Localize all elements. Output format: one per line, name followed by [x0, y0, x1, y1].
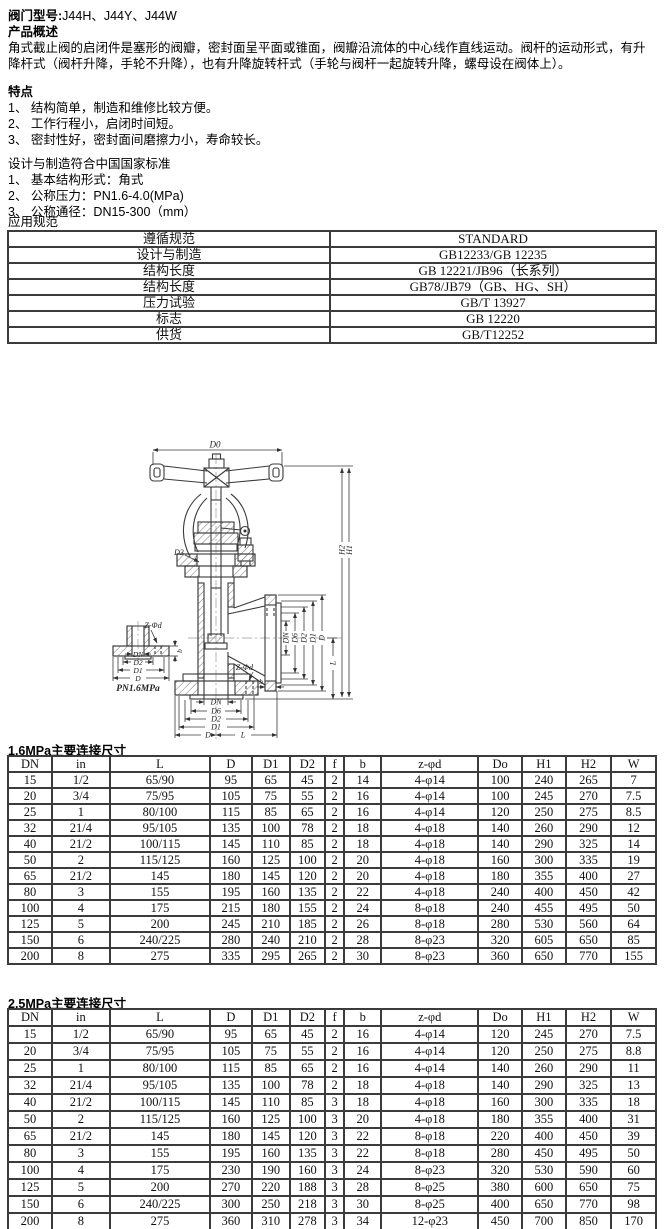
table-cell: 28	[344, 932, 381, 948]
table-cell: 20	[344, 1111, 381, 1128]
table-cell: GB78/JB79（GB、HG、SH）	[330, 279, 656, 295]
table-cell: 1/2	[52, 1026, 110, 1043]
table-row: 结构长度GB78/JB79（GB、HG、SH）	[8, 279, 656, 295]
table-cell: 4-φ14	[381, 804, 478, 820]
pressure-note: PN1.6MPa	[116, 684, 160, 694]
table-cell: 245	[522, 788, 566, 804]
table-cell: 遵循规范	[8, 231, 330, 247]
table-cell: 4	[52, 900, 110, 916]
table-cell: 45	[290, 772, 325, 788]
table-cell: 98	[611, 1196, 656, 1213]
table-cell: 2	[325, 1026, 344, 1043]
table-cell: 结构长度	[8, 263, 330, 279]
table-cell: 295	[252, 948, 290, 964]
table-cell: 2	[325, 1060, 344, 1077]
table-cell: 65	[8, 868, 52, 884]
table-cell: 120	[290, 1128, 325, 1145]
table-cell: 75/95	[110, 788, 210, 804]
table-cell: 270	[566, 1026, 611, 1043]
table-cell: 95	[210, 772, 251, 788]
table-cell: 85	[290, 836, 325, 852]
table-cell: 85	[252, 1060, 290, 1077]
table-cell: 20	[344, 868, 381, 884]
table-cell: 240	[478, 884, 521, 900]
table-cell: 450	[566, 1128, 611, 1145]
table-cell: 495	[566, 1145, 611, 1162]
table-cell: 145	[110, 1128, 210, 1145]
model-label: 阀门型号:	[8, 9, 62, 23]
table-row: 25180/10011585652164-φ1414026029011	[8, 1060, 656, 1077]
dim-label: D	[318, 635, 327, 642]
design-item: 1、 基本结构形式：角式	[8, 172, 196, 188]
table-cell: 45	[290, 1026, 325, 1043]
dim-label: DN	[282, 632, 291, 645]
table-cell: 240	[522, 772, 566, 788]
table-cell: 3	[325, 1145, 344, 1162]
table-cell: 105	[210, 788, 251, 804]
table-cell: 18	[344, 836, 381, 852]
table-cell: 40	[8, 1094, 52, 1111]
table-cell: 3	[52, 1145, 110, 1162]
table-cell: GB 12221/JB96（长系列）	[330, 263, 656, 279]
feature-item: 2、 工作行程小，启闭时间短。	[8, 116, 268, 132]
table-cell: 80/100	[110, 1060, 210, 1077]
table-cell: 180	[478, 1111, 521, 1128]
table-cell: 600	[522, 1179, 566, 1196]
table-row: 12552002702201883288-φ2538060065075	[8, 1179, 656, 1196]
table-cell: 95/105	[110, 820, 210, 836]
table-cell: 85	[252, 804, 290, 820]
table-cell: 280	[478, 1145, 521, 1162]
table-cell: 300	[522, 852, 566, 868]
product-overview-text: 角式截止阀的启闭件是塞形的阀瓣，密封面呈平面或锥面，阀瓣沿流体的中心线作直线运动…	[8, 40, 657, 72]
table-cell: 8-φ25	[381, 1196, 478, 1213]
table-cell: 215	[210, 900, 251, 916]
table-cell: 100	[252, 1077, 290, 1094]
table-cell: STANDARD	[330, 231, 656, 247]
table-row: 25180/10011585652164-φ141202502758.5	[8, 804, 656, 820]
table-cell: 20	[8, 788, 52, 804]
table-cell: 270	[566, 788, 611, 804]
design-standards-section: 设计与制造符合中国国家标准 1、 基本结构形式：角式 2、 公称压力：PN1.6…	[8, 156, 196, 220]
table-cell: 145	[252, 868, 290, 884]
table-cell: 2	[325, 948, 344, 964]
table-cell: 700	[522, 1213, 566, 1229]
column-header: H1	[522, 1009, 566, 1026]
table-cell: 21/2	[52, 1128, 110, 1145]
table-cell: 300	[522, 1094, 566, 1111]
table-cell: 85	[290, 1094, 325, 1111]
table-cell: 290	[522, 1077, 566, 1094]
table-cell: 4-φ18	[381, 1077, 478, 1094]
table-cell: 230	[210, 1162, 251, 1179]
table-cell: 16	[344, 788, 381, 804]
features-section: 特点 1、 结构简单，制造和维修比较方便。 2、 工作行程小，启闭时间短。 3、…	[8, 84, 268, 148]
table-cell: 175	[110, 1162, 210, 1179]
table-cell: 125	[252, 852, 290, 868]
table-cell: 22	[344, 1145, 381, 1162]
table-cell: 21/2	[52, 836, 110, 852]
table-cell: 275	[566, 804, 611, 820]
table-cell: 135	[210, 820, 251, 836]
table-cell: 160	[252, 884, 290, 900]
table-cell: 8	[52, 1213, 110, 1229]
dim-label: D1	[309, 633, 318, 644]
table-cell: 85	[611, 932, 656, 948]
features-heading: 特点	[8, 84, 268, 100]
table-cell: 335	[566, 852, 611, 868]
table-cell: 2	[52, 852, 110, 868]
table-cell: 160	[210, 1111, 251, 1128]
dim-label: DN	[209, 698, 222, 707]
column-header: H2	[566, 756, 611, 772]
feature-item: 1、 结构简单，制造和维修比较方便。	[8, 100, 268, 116]
table-cell: 8-φ18	[381, 900, 478, 916]
table-cell: 50	[8, 852, 52, 868]
table-cell: 320	[478, 1162, 521, 1179]
table-cell: 2	[325, 852, 344, 868]
table-cell: 55	[290, 1043, 325, 1060]
table-cell: 3	[52, 884, 110, 900]
table-cell: 450	[566, 884, 611, 900]
table-cell: 140	[478, 820, 521, 836]
application-spec-heading: 应用规范	[8, 214, 58, 230]
model-value: J44H、J44Y、J44W	[62, 9, 177, 23]
dim-label: L	[240, 731, 246, 740]
table-cell: 80	[8, 884, 52, 900]
table-cell: 115/125	[110, 852, 210, 868]
table-row: 3221/495/105135100782184-φ1814026029012	[8, 820, 656, 836]
table-cell: 200	[8, 948, 52, 964]
table-row: 502115/1251601251002204-φ1816030033519	[8, 852, 656, 868]
dim-label: Z-Φd	[236, 663, 254, 672]
table-cell: 125	[252, 1111, 290, 1128]
table-cell: 30	[344, 948, 381, 964]
table-cell: GB/T12252	[330, 327, 656, 343]
table-cell: 2	[325, 932, 344, 948]
table-cell: 压力试验	[8, 295, 330, 311]
table-cell: 2	[325, 1043, 344, 1060]
table-cell: 200	[110, 916, 210, 932]
table-cell: 50	[611, 1145, 656, 1162]
table-cell: 25	[8, 1060, 52, 1077]
table-cell: 8-φ18	[381, 916, 478, 932]
table-cell: 27	[611, 868, 656, 884]
table-cell: 400	[566, 868, 611, 884]
table-cell: 1/2	[52, 772, 110, 788]
table-cell: 2	[325, 836, 344, 852]
table-cell: 50	[611, 900, 656, 916]
table-row: 设计与制造GB12233/GB 12235	[8, 247, 656, 263]
table-cell: 75/95	[110, 1043, 210, 1060]
table-cell: 65	[252, 772, 290, 788]
table-cell: 355	[522, 868, 566, 884]
table-cell: 200	[8, 1213, 52, 1229]
table-cell: 100	[290, 852, 325, 868]
header-row: DNinLDD1D2fbz-φdDoH1H2W	[8, 1009, 656, 1026]
table-cell: 530	[522, 1162, 566, 1179]
table-cell: 110	[252, 836, 290, 852]
table-cell: 42	[611, 884, 656, 900]
table-cell: 31	[611, 1111, 656, 1128]
table-cell: 650	[566, 932, 611, 948]
table-cell: 60	[611, 1162, 656, 1179]
column-header: z-φd	[381, 756, 478, 772]
table-cell: GB/T 13927	[330, 295, 656, 311]
table-cell: 260	[522, 820, 566, 836]
table-cell: 80/100	[110, 804, 210, 820]
table-cell: 24	[344, 900, 381, 916]
table-cell: 7.5	[611, 788, 656, 804]
table-cell: 3	[325, 1213, 344, 1229]
table-cell: 7	[611, 772, 656, 788]
table-cell: 65	[8, 1128, 52, 1145]
table-cell: 32	[8, 820, 52, 836]
table-cell: 2	[325, 772, 344, 788]
table-cell: 55	[290, 788, 325, 804]
table-cell: 155	[110, 884, 210, 900]
table-cell: 105	[210, 1043, 251, 1060]
table-cell: 160	[478, 852, 521, 868]
table-cell: 5	[52, 916, 110, 932]
table-cell: 135	[290, 1145, 325, 1162]
table-cell: 5	[52, 1179, 110, 1196]
table-cell: 210	[290, 932, 325, 948]
table-cell: 2	[325, 804, 344, 820]
table-cell: 16	[344, 1043, 381, 1060]
table-cell: 6	[52, 1196, 110, 1213]
table-row: 4021/2100/115145110852184-φ1814029032514	[8, 836, 656, 852]
table-cell: 78	[290, 1077, 325, 1094]
column-header: DN	[8, 756, 52, 772]
table-cell: 145	[210, 836, 251, 852]
table-cell: 218	[290, 1196, 325, 1213]
table-cell: 12-φ23	[381, 1213, 478, 1229]
table-cell: 150	[8, 932, 52, 948]
dim-label: D6	[291, 633, 300, 644]
table-row: 6521/21451801451203228-φ1822040045039	[8, 1128, 656, 1145]
table-cell: 250	[522, 1043, 566, 1060]
table-cell: 21/2	[52, 868, 110, 884]
table-cell: 180	[478, 868, 521, 884]
table-cell: 115	[210, 1060, 251, 1077]
table-cell: 4-φ14	[381, 1060, 478, 1077]
table-cell: 4-φ18	[381, 1111, 478, 1128]
column-header: D	[210, 756, 251, 772]
table-cell: 4-φ18	[381, 820, 478, 836]
table-cell: 850	[566, 1213, 611, 1229]
column-header: H1	[522, 756, 566, 772]
table-cell: 270	[210, 1179, 251, 1196]
table-cell: 400	[522, 884, 566, 900]
dim-label: D2	[300, 633, 309, 644]
table-cell: 100	[290, 1111, 325, 1128]
table-cell: 3	[325, 1111, 344, 1128]
table-cell: 4-φ14	[381, 772, 478, 788]
table-cell: 280	[210, 932, 251, 948]
table-cell: 150	[8, 1196, 52, 1213]
column-header: Do	[478, 756, 521, 772]
table-cell: 95/105	[110, 1077, 210, 1094]
table-cell: 188	[290, 1179, 325, 1196]
dimension-table-25mpa: DNinLDD1D2fbz-φdDoH1H2W 151/265/90956545…	[7, 1008, 657, 1229]
table-cell: 115	[210, 804, 251, 820]
table-cell: 120	[478, 1043, 521, 1060]
column-header: b	[344, 1009, 381, 1026]
table-cell: 325	[566, 1077, 611, 1094]
table-cell: 100	[252, 820, 290, 836]
table-cell: 65	[290, 804, 325, 820]
table-cell: 175	[110, 900, 210, 916]
table-cell: 245	[522, 1026, 566, 1043]
table-row: 10041752151801552248-φ1824045549550	[8, 900, 656, 916]
column-header: W	[611, 1009, 656, 1026]
table-cell: 4-φ14	[381, 1043, 478, 1060]
table-cell: 4-φ14	[381, 1026, 478, 1043]
table-row: 151/265/909565452144-φ141002402657	[8, 772, 656, 788]
column-header: D2	[290, 756, 325, 772]
table-cell: 3	[325, 1094, 344, 1111]
table-cell: 155	[110, 1145, 210, 1162]
column-header: in	[52, 1009, 110, 1026]
table-cell: 115/125	[110, 1111, 210, 1128]
table-row: 10041752301901603248-φ2332053059060	[8, 1162, 656, 1179]
dim-label: D	[134, 674, 141, 683]
table-cell: 278	[290, 1213, 325, 1229]
table-cell: 16	[344, 1060, 381, 1077]
table-cell: 250	[522, 804, 566, 820]
table-cell: 200	[110, 1179, 210, 1196]
table-row: 8031551951601353228-φ1828045049550	[8, 1145, 656, 1162]
table-cell: 18	[344, 1077, 381, 1094]
table-cell: 160	[478, 1094, 521, 1111]
dim-label: D1	[210, 723, 221, 732]
column-header: f	[325, 1009, 344, 1026]
table-row: 200827536031027833412-φ23450700850170	[8, 1213, 656, 1229]
table-row: 8031551951601352224-φ1824040045042	[8, 884, 656, 900]
table-cell: 195	[210, 1145, 251, 1162]
header-row: DNinLDD1D2fbz-φdDoH1H2W	[8, 756, 656, 772]
table-row: 压力试验GB/T 13927	[8, 295, 656, 311]
valve-technical-drawing: D0 D3 DN D6 D2 D1 D L H2 H1 Z-Φd b DN D6…	[95, 438, 365, 745]
table-cell: 310	[252, 1213, 290, 1229]
table-cell: 145	[110, 868, 210, 884]
table-cell: 100	[478, 788, 521, 804]
table-cell: 18	[611, 1094, 656, 1111]
column-header: W	[611, 756, 656, 772]
table-cell: 21/4	[52, 1077, 110, 1094]
table-cell: 6	[52, 932, 110, 948]
table-cell: 530	[522, 916, 566, 932]
product-overview-heading: 产品概述	[8, 24, 58, 40]
table-cell: 240	[478, 900, 521, 916]
table-cell: 3	[325, 1196, 344, 1213]
table-cell: 240/225	[110, 932, 210, 948]
table-cell: 220	[252, 1179, 290, 1196]
table-cell: 260	[522, 1060, 566, 1077]
table-row: 标志GB 12220	[8, 311, 656, 327]
table-cell: 245	[210, 916, 251, 932]
table-row: 6521/21451801451202204-φ1818035540027	[8, 868, 656, 884]
table-cell: 3	[325, 1128, 344, 1145]
table-cell: 2	[325, 916, 344, 932]
column-header: D1	[252, 1009, 290, 1026]
table-cell: 320	[478, 932, 521, 948]
table-cell: 180	[252, 900, 290, 916]
table-cell: 2	[52, 1111, 110, 1128]
table-cell: 25	[8, 804, 52, 820]
design-item: 2、 公称压力：PN1.6-4.0(MPa)	[8, 188, 196, 204]
table-row: 203/475/9510575552164-φ141202502758.8	[8, 1043, 656, 1060]
table-cell: 22	[344, 1128, 381, 1145]
table-cell: 75	[611, 1179, 656, 1196]
table-cell: 75	[252, 788, 290, 804]
column-header: z-φd	[381, 1009, 478, 1026]
table-cell: 495	[566, 900, 611, 916]
table-cell: 135	[210, 1077, 251, 1094]
table-cell: 80	[8, 1145, 52, 1162]
table-cell: 190	[252, 1162, 290, 1179]
table-cell: 65/90	[110, 772, 210, 788]
table-cell: 140	[478, 1077, 521, 1094]
table-cell: 240/225	[110, 1196, 210, 1213]
table-row: 151/265/909565452164-φ141202452707.5	[8, 1026, 656, 1043]
table-cell: 15	[8, 772, 52, 788]
table-cell: 8	[52, 948, 110, 964]
table-cell: 64	[611, 916, 656, 932]
table-row: 遵循规范STANDARD	[8, 231, 656, 247]
table-cell: 65	[252, 1026, 290, 1043]
table-cell: 4-φ18	[381, 868, 478, 884]
table-cell: 39	[611, 1128, 656, 1145]
table-row: 203/475/9510575552164-φ141002452707.5	[8, 788, 656, 804]
column-header: in	[52, 756, 110, 772]
table-cell: 95	[210, 1026, 251, 1043]
table-cell: 8-φ18	[381, 1145, 478, 1162]
table-cell: 275	[110, 948, 210, 964]
table-cell: 14	[611, 836, 656, 852]
table-row: 20082753352952652308-φ23360650770155	[8, 948, 656, 964]
table-cell: 180	[210, 1128, 251, 1145]
table-cell: 100	[8, 1162, 52, 1179]
table-cell: 155	[290, 900, 325, 916]
table-cell: 140	[478, 836, 521, 852]
column-header: L	[110, 756, 210, 772]
table-cell: 770	[566, 948, 611, 964]
table-cell: 19	[611, 852, 656, 868]
table-cell: 2	[325, 900, 344, 916]
column-header: L	[110, 1009, 210, 1026]
table-cell: 8-φ23	[381, 932, 478, 948]
table-cell: 8-φ18	[381, 1128, 478, 1145]
table-cell: 300	[210, 1196, 251, 1213]
table-cell: 380	[478, 1179, 521, 1196]
table-cell: 15	[8, 1026, 52, 1043]
table-cell: 195	[210, 884, 251, 900]
table-cell: 325	[566, 836, 611, 852]
column-header: Do	[478, 1009, 521, 1026]
table-cell: 280	[478, 916, 521, 932]
table-row: 结构长度GB 12221/JB96（长系列）	[8, 263, 656, 279]
table-cell: 120	[290, 868, 325, 884]
table-cell: 275	[566, 1043, 611, 1060]
column-header: D	[210, 1009, 251, 1026]
table-cell: 400	[522, 1128, 566, 1145]
table-cell: 290	[566, 1060, 611, 1077]
table-cell: 605	[522, 932, 566, 948]
table-cell: 50	[8, 1111, 52, 1128]
table-cell: 220	[478, 1128, 521, 1145]
